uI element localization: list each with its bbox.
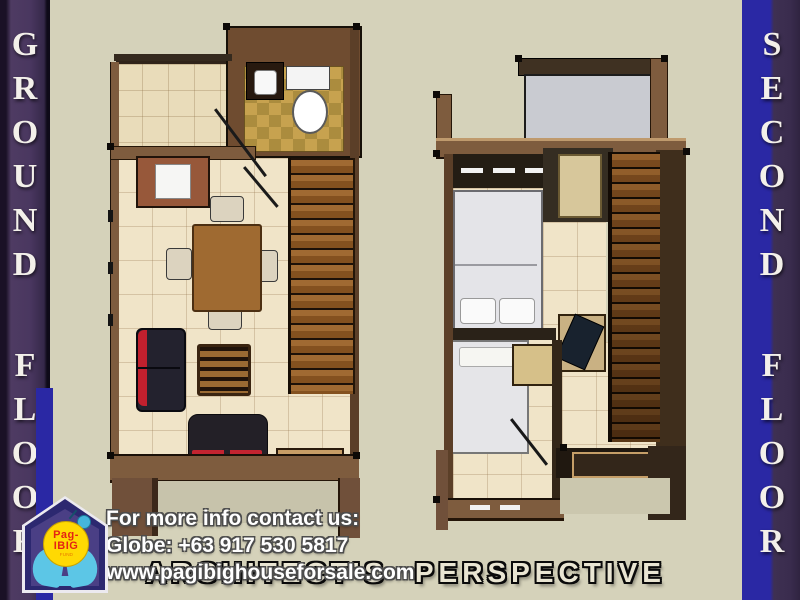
refrigerator [136, 328, 186, 412]
flyer-image: G R O U N D F L O O R S E C O N D F L O … [0, 0, 800, 600]
banner-letter: F [15, 344, 36, 388]
wall-cap [683, 148, 690, 155]
wall-divider [444, 328, 556, 340]
second-floor-banner-text: S E C O N D F L O O R [750, 0, 794, 564]
bedroom1-window-band [453, 154, 555, 188]
wall-cap [515, 55, 522, 62]
banner-letter: L [761, 388, 784, 432]
banner-letter: D [13, 243, 38, 287]
toilet-bowl [292, 90, 328, 134]
kitchen-sink [155, 164, 191, 199]
window-pane [493, 168, 515, 173]
refrigerator-split [138, 367, 180, 369]
kitchen-counter [136, 156, 210, 208]
bed-1 [453, 190, 543, 338]
balcony-deck [524, 74, 654, 142]
wall-cap [353, 23, 360, 30]
low-table [572, 452, 654, 478]
banner-letter: F [762, 344, 783, 388]
banner-letter: N [760, 199, 785, 243]
contact-intro: For more info contact us: [106, 505, 414, 532]
window-pane [461, 168, 483, 173]
logo-yellow-circle: Pag- IBIG FUND [43, 521, 89, 567]
bathroom-sink [246, 62, 284, 100]
banner-letter: E [761, 67, 784, 111]
stairs-wall-right [656, 150, 686, 462]
pillow [459, 347, 517, 367]
bed-sheet-line [455, 264, 537, 266]
banner-letter: R [13, 67, 38, 111]
kitchen-top-wall [114, 54, 232, 61]
kitchen-floor [116, 60, 226, 152]
staircase-ground [288, 158, 355, 394]
window-pane [500, 505, 520, 510]
banner-letter: O [759, 155, 785, 199]
window-mark [108, 210, 113, 222]
dining-chair [166, 248, 192, 280]
banner-letter: O [759, 476, 785, 520]
wall-cap [107, 452, 114, 459]
wall-cap [661, 55, 668, 62]
sink-basin [254, 70, 277, 95]
logo-text-fund: FUND [59, 553, 72, 558]
contact-website: www.pagibighouseforsale.com [106, 559, 414, 586]
logo-hands-base [42, 576, 88, 586]
contact-info: For more info contact us: Globe: +63 917… [106, 505, 414, 586]
banner-letter: N [13, 199, 38, 243]
staircase-second [608, 152, 660, 442]
second-floor-plan [400, 0, 742, 600]
wall-cap [560, 444, 567, 451]
closet [558, 154, 602, 218]
second-floor-banner: S E C O N D F L O O R [742, 0, 800, 600]
banner-letter: D [760, 243, 785, 287]
banner-letter: G [12, 23, 38, 67]
banner-letter: C [760, 111, 785, 155]
second-shadow [560, 478, 670, 514]
wall-cap [223, 23, 230, 30]
banner-letter: O [759, 432, 785, 476]
window-mark [108, 314, 113, 326]
wall-cap [353, 452, 360, 459]
wall-cap [433, 150, 440, 157]
wall-cap [433, 91, 440, 98]
dining-table [192, 224, 262, 312]
pillow [499, 298, 535, 324]
window-pane [470, 505, 490, 510]
dining-chair [210, 196, 244, 222]
banner-letter: O [12, 432, 38, 476]
banner-letter: U [13, 155, 38, 199]
wall-post [436, 450, 448, 530]
pagibig-logo: Pag- IBIG FUND [22, 496, 108, 593]
pillow [460, 298, 496, 324]
wall-bottom [444, 498, 564, 521]
slatted-table [197, 344, 251, 396]
wall-left [110, 62, 119, 456]
banner-letter: L [14, 388, 37, 432]
contact-phone: Globe: +63 917 530 5817 [106, 532, 414, 559]
wall-cap [107, 143, 114, 150]
window-mark [108, 262, 113, 274]
banner-letter: R [760, 520, 785, 564]
wall-cap [433, 496, 440, 503]
logo-text-ibig: IBIG [54, 541, 79, 552]
toilet-tank [286, 66, 330, 90]
banner-letter: S [763, 23, 782, 67]
banner-letter: O [12, 111, 38, 155]
